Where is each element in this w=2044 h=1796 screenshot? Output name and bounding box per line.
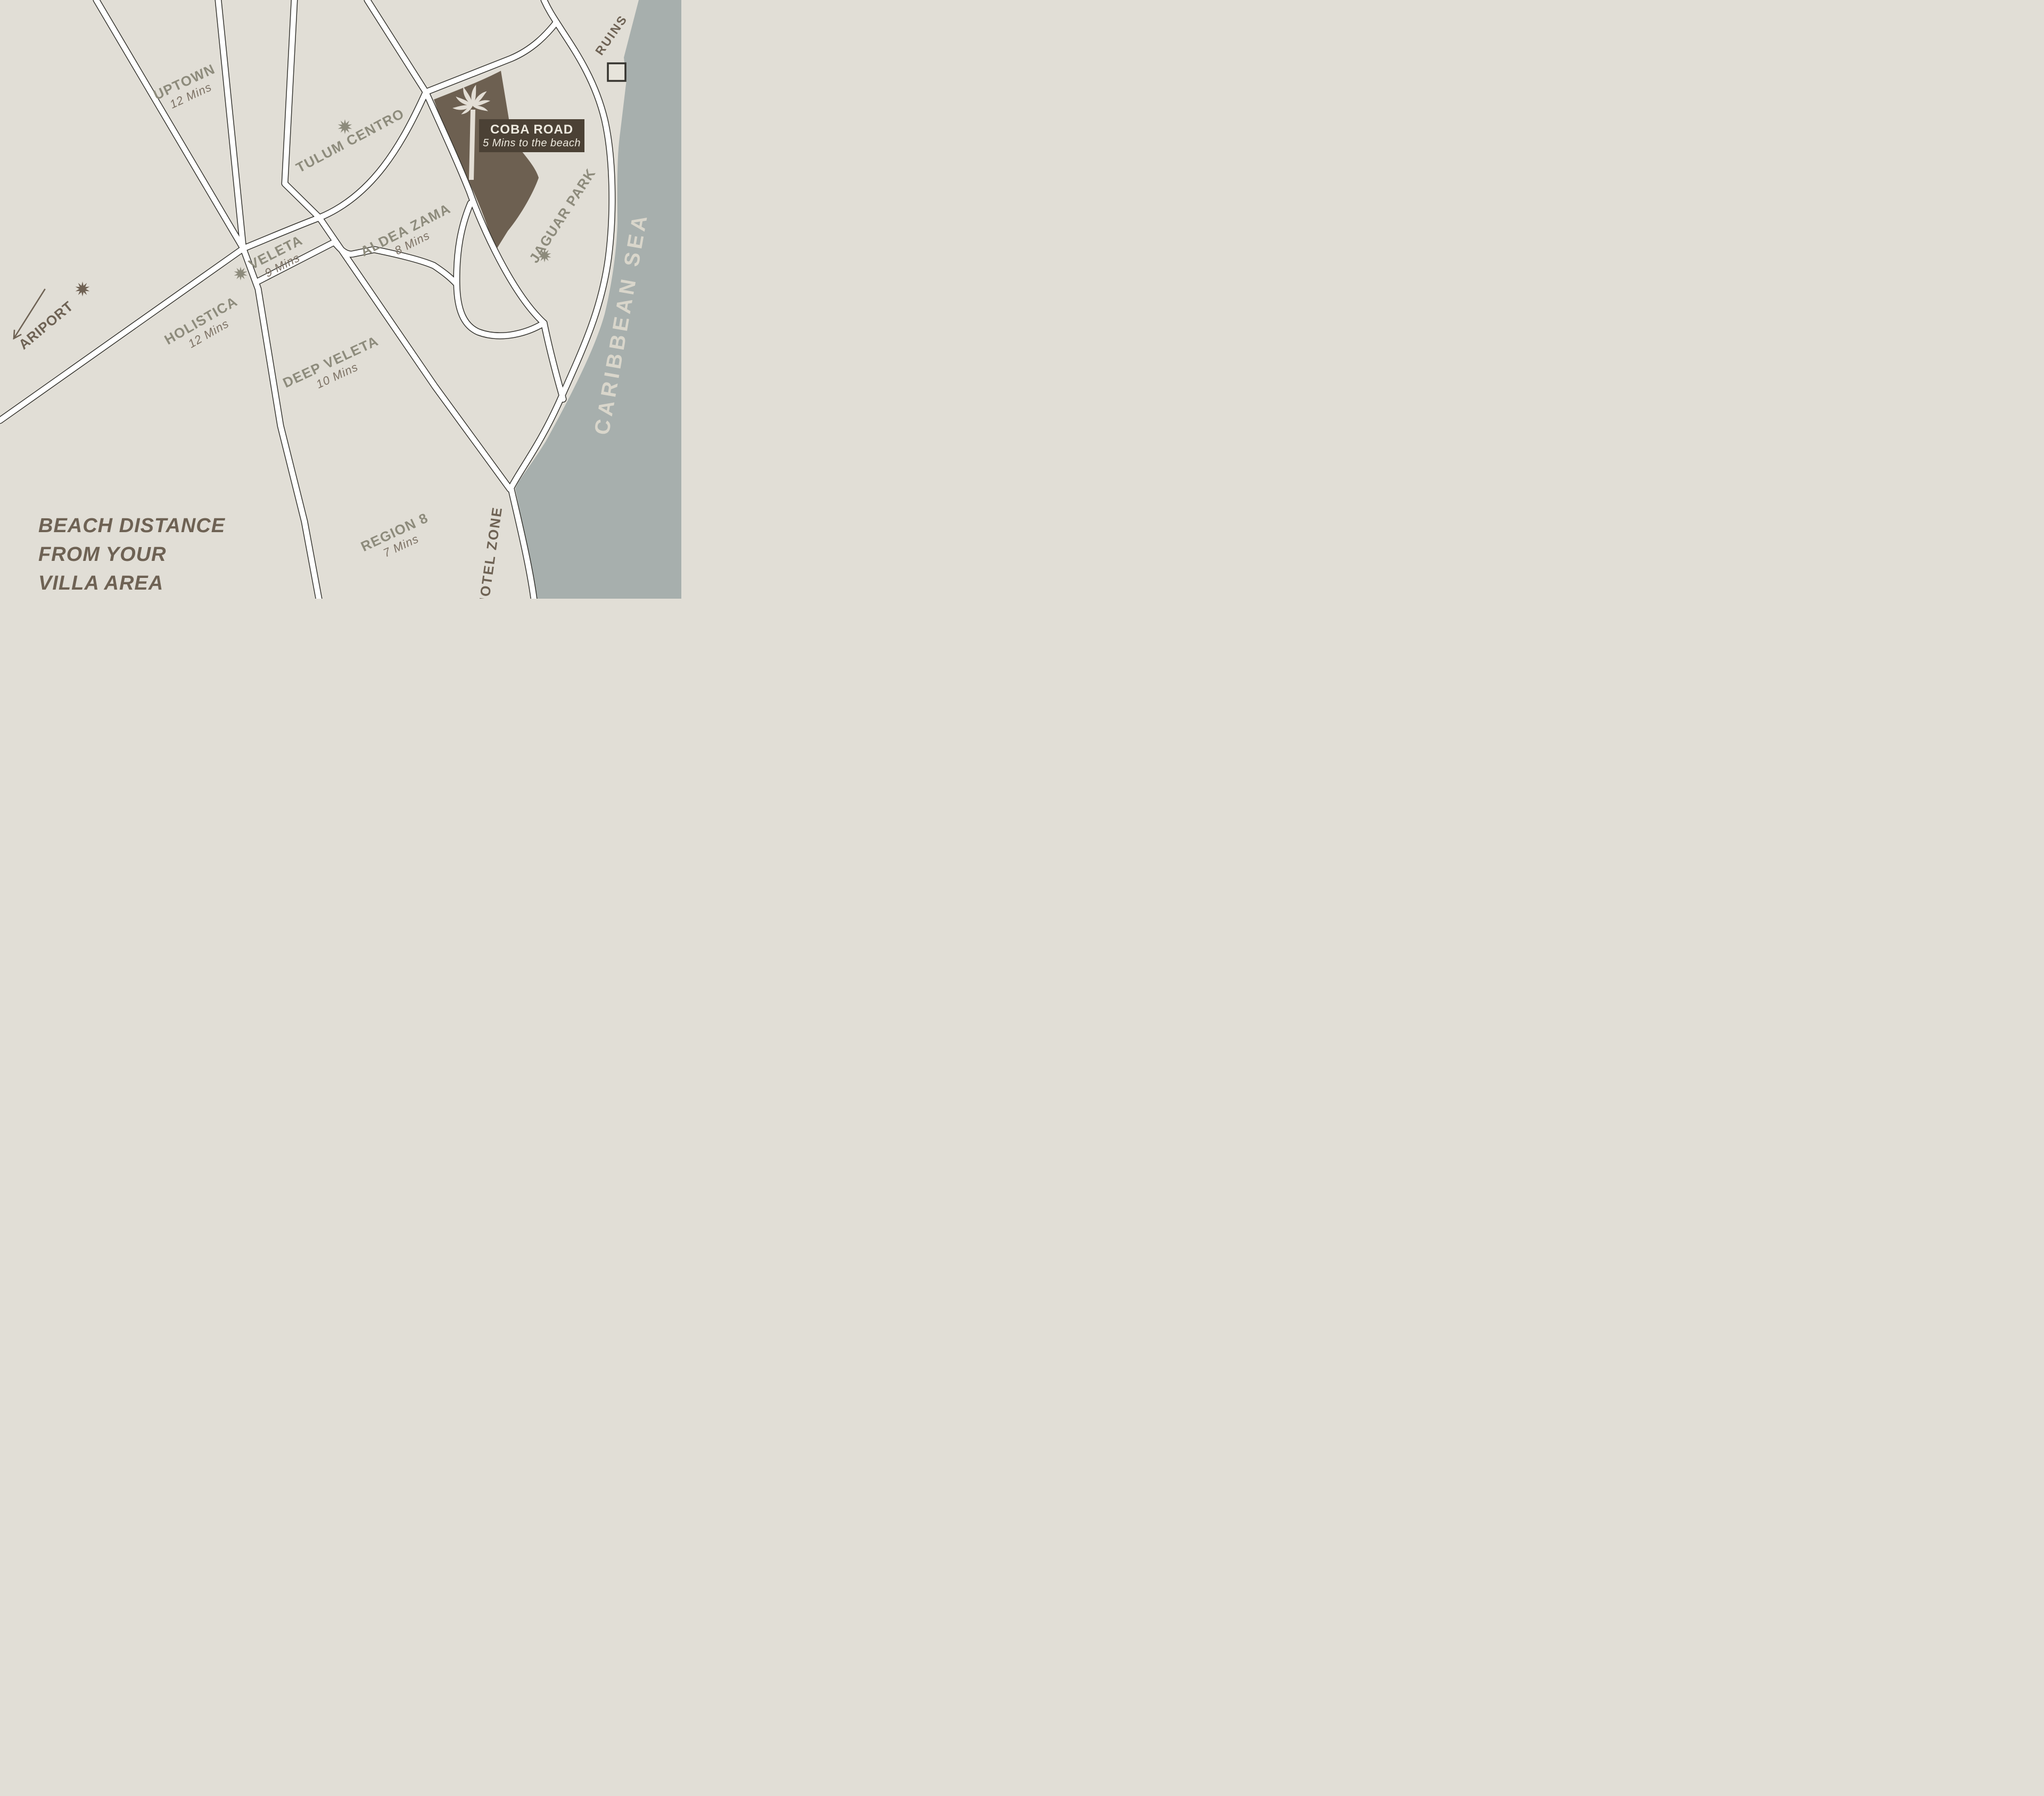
legend-line-3: VILLA AREA <box>38 572 163 594</box>
coba-road-badge: COBA ROAD 5 Mins to the beach <box>479 119 584 152</box>
legend-line-2: FROM YOUR <box>38 543 167 566</box>
ruins-marker <box>608 63 625 81</box>
tulum-area-map: COBA ROAD 5 Mins to the beach UPTOWN 12 … <box>0 0 681 599</box>
coba-road-badge-subtitle: 5 Mins to the beach <box>483 137 581 149</box>
coba-road-badge-title: COBA ROAD <box>490 122 573 137</box>
legend-line-1: BEACH DISTANCE <box>38 515 226 537</box>
map-stage: COBA ROAD 5 Mins to the beach UPTOWN 12 … <box>0 0 681 599</box>
